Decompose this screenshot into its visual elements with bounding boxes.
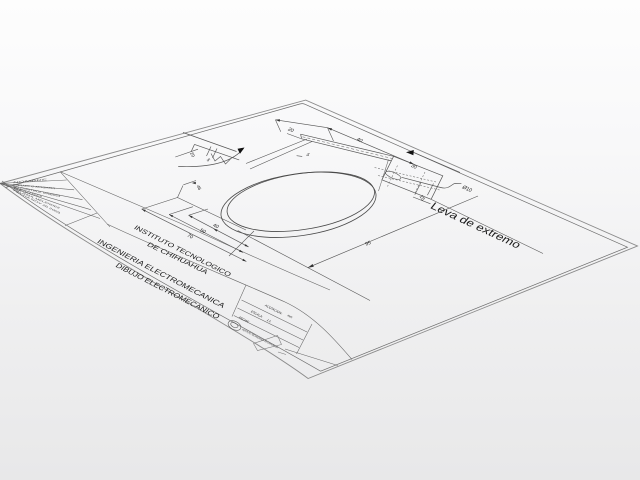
svg-text:46: 46 (196, 184, 203, 191)
svg-text:NOMBRE: NOMBRE (13, 179, 49, 184)
svg-text:FECHA:: FECHA: (238, 316, 251, 324)
svg-text:20: 20 (286, 127, 295, 134)
svg-text:40: 40 (211, 223, 220, 230)
svg-text:ACOTACION:: ACOTACION: (264, 304, 284, 316)
svg-text:5: 5 (206, 158, 212, 163)
svg-text:70: 70 (186, 233, 195, 240)
svg-text:20: 20 (189, 151, 196, 158)
svg-text:50: 50 (198, 228, 207, 235)
svg-text:15: 15 (418, 194, 426, 202)
svg-text:40: 40 (355, 137, 364, 144)
svg-text:Ø10: Ø10 (460, 185, 473, 194)
svg-text:5: 5 (305, 152, 311, 157)
svg-text:mm: mm (286, 314, 294, 320)
svg-text:Leva de extremo: Leva de extremo (428, 201, 524, 251)
